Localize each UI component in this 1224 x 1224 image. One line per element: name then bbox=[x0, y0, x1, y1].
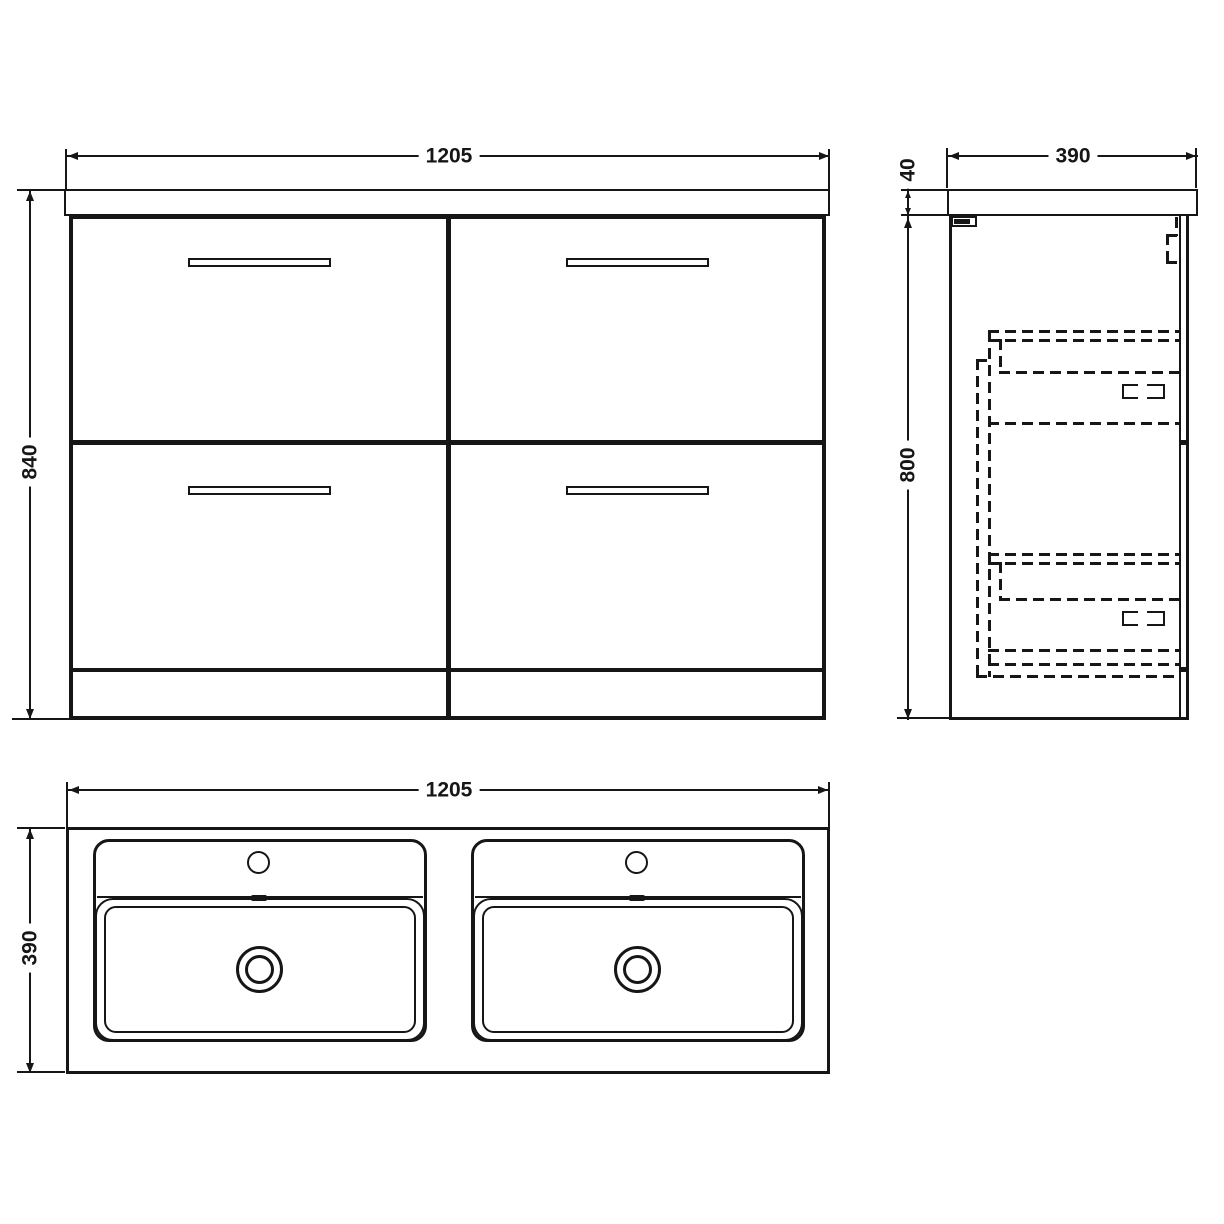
plan-depth-arrow-top bbox=[26, 829, 34, 839]
plan-width-dim-ext-left bbox=[66, 782, 68, 827]
plan-depth-dim-ext-top bbox=[17, 827, 65, 829]
basin-left-tap-hole bbox=[247, 851, 270, 874]
basin-left-drain-inner bbox=[245, 955, 274, 984]
plan-width-arrow-left bbox=[69, 786, 79, 794]
basin-right-tap-hole bbox=[625, 851, 648, 874]
plan-width-dim-label: 1205 bbox=[419, 778, 480, 801]
plan-depth-dim-label: 390 bbox=[18, 923, 41, 972]
plan-view: 1205 390 bbox=[0, 0, 1224, 1224]
basin-right-drain-inner bbox=[623, 955, 652, 984]
plan-width-dim-ext-right bbox=[828, 782, 830, 827]
plan-width-arrow-right bbox=[818, 786, 828, 794]
plan-depth-dim-ext-bottom bbox=[17, 1071, 65, 1073]
plan-depth-arrow-bottom bbox=[26, 1063, 34, 1073]
technical-drawing-canvas: 1205 840 390 bbox=[0, 0, 1224, 1224]
